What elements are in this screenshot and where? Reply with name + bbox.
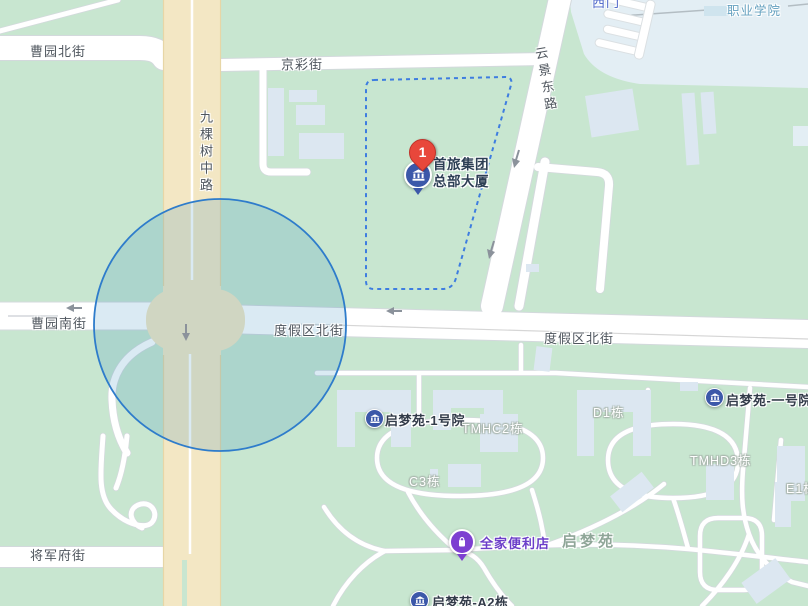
map-canvas[interactable]	[0, 0, 808, 606]
street-label-dujiaqu-north-east: 度假区北街	[544, 328, 614, 347]
building-icon	[415, 596, 425, 606]
building-label-tmhc2: TMHC2栋	[462, 418, 524, 437]
poi-label-qimengyuan-yard1[interactable]: 启梦苑-1号院	[385, 410, 465, 429]
street-label-jiukeshu-middle: 九棵树中路	[196, 110, 215, 195]
store-marker[interactable]	[449, 529, 475, 555]
street-label-caoyuan-north: 曹园北街	[30, 41, 86, 60]
building-label-e1: E1栋	[786, 478, 808, 497]
poi-marker-qimengyuan-yard1[interactable]	[365, 409, 384, 428]
poi-marker-qimengyuan-a2[interactable]	[410, 591, 429, 606]
building-label-d1: D1栋	[593, 402, 624, 421]
poi-label-qimengyuan-no1[interactable]: 启梦苑-一号院	[726, 390, 808, 409]
area-label-residential: 启梦苑	[562, 530, 616, 551]
shopping-bag-icon	[456, 536, 468, 548]
street-label-jingcai: 京彩街	[281, 54, 323, 73]
street-label-caoyuan-south: 曹园南街	[31, 313, 87, 332]
result-pin-badge: 1	[410, 140, 435, 165]
building-icon	[710, 393, 720, 403]
poi-marker-qimengyuan-no1[interactable]	[705, 388, 724, 407]
building-label-c3: C3栋	[409, 471, 440, 490]
main-poi-label-line2: 总部大厦	[433, 173, 489, 190]
street-label-jiangjunfu: 将军府街	[30, 545, 86, 564]
area-label-campus: 职业学院	[727, 0, 781, 19]
area-label-west-gate: 西门	[592, 0, 620, 11]
main-poi-label-line1: 首旅集团	[433, 156, 489, 173]
poi-label-qimengyuan-a2[interactable]: 启梦苑-A2栋	[432, 592, 508, 606]
building-label-tmhd3: TMHD3栋	[690, 450, 752, 469]
map-viewport[interactable]: 曹园北街 京彩街 九棵树中路 云景东路 曹园南街 度假区北街 度假区北街 将军府…	[0, 0, 808, 606]
store-label[interactable]: 全家便利店	[480, 533, 550, 552]
main-poi-label[interactable]: 首旅集团 总部大厦	[433, 156, 489, 190]
street-label-dujiaqu-north-west: 度假区北街	[274, 320, 344, 339]
building-icon	[370, 414, 380, 424]
